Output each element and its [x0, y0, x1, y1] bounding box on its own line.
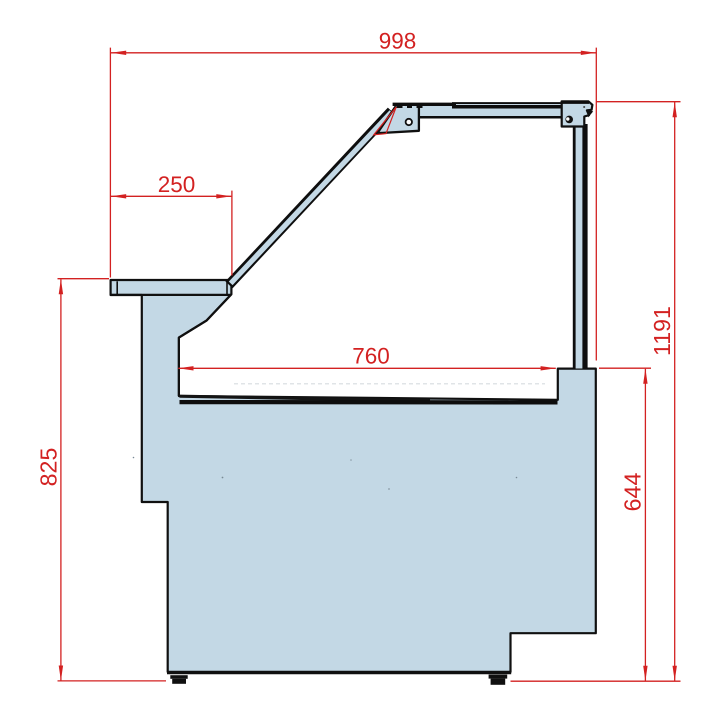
- svg-text:644: 644: [619, 473, 645, 512]
- svg-text:825: 825: [36, 448, 62, 487]
- svg-text:998: 998: [379, 29, 417, 54]
- svg-text:760: 760: [352, 344, 390, 369]
- svg-text:250: 250: [158, 172, 196, 197]
- svg-text:1191: 1191: [649, 306, 675, 356]
